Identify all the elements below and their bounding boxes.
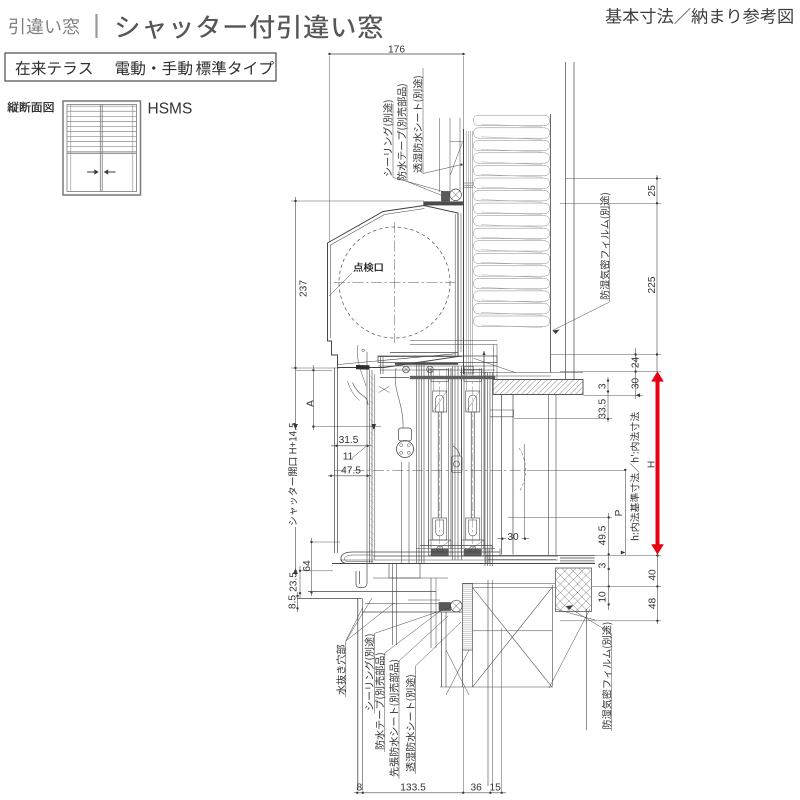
svg-text:33.5: 33.5 (598, 399, 609, 419)
svg-text:HSMS: HSMS (148, 101, 193, 118)
svg-text:P: P (614, 509, 625, 516)
svg-text:48: 48 (648, 598, 659, 610)
svg-text:237: 237 (299, 280, 310, 297)
svg-text:11: 11 (343, 452, 354, 463)
svg-text:47.5: 47.5 (341, 466, 361, 477)
svg-text:24: 24 (631, 357, 642, 369)
svg-text:133.5: 133.5 (400, 782, 426, 793)
svg-text:31.5: 31.5 (339, 435, 359, 446)
svg-text:176: 176 (388, 45, 405, 56)
svg-text:8: 8 (356, 782, 362, 793)
svg-text:3: 3 (598, 383, 609, 389)
svg-text:30: 30 (507, 532, 519, 543)
svg-text:49.5: 49.5 (598, 525, 609, 545)
svg-text:8.5: 8.5 (288, 595, 299, 609)
svg-text:30: 30 (631, 378, 642, 390)
svg-text:64: 64 (302, 560, 313, 572)
svg-text:25: 25 (647, 185, 658, 197)
svg-text:15: 15 (490, 782, 502, 793)
svg-text:36: 36 (471, 782, 483, 793)
svg-text:3: 3 (598, 562, 609, 568)
svg-text:10: 10 (598, 591, 609, 603)
svg-text:225: 225 (647, 276, 658, 293)
svg-text:40: 40 (648, 569, 659, 581)
svg-text:A: A (306, 400, 317, 407)
svg-text:23.5: 23.5 (289, 572, 300, 592)
